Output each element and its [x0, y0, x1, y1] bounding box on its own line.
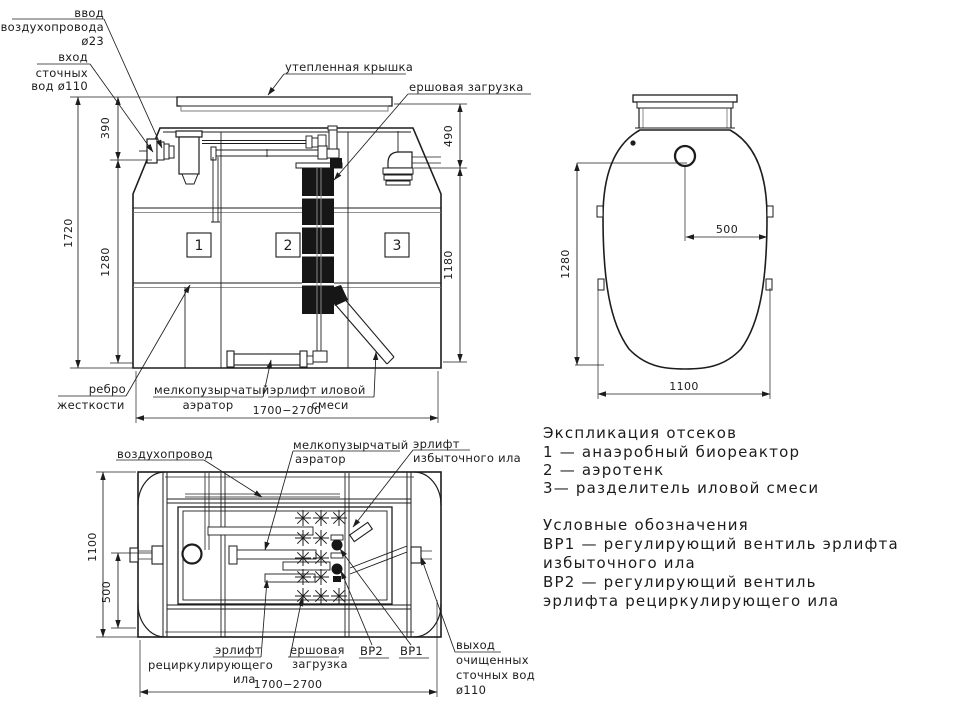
inlet-assembly — [139, 131, 202, 184]
sludge-airlift-pipe — [328, 285, 394, 364]
plan-brush-label-line2: загрузка — [292, 657, 348, 671]
compartment-1-number: 1 — [195, 238, 204, 254]
side-body — [597, 130, 773, 369]
compartment-3-number: 3 — [393, 238, 402, 254]
plan-view: 1100 500 1700−2700 — [86, 437, 535, 697]
plan-aerator-label-line1: мелкопузырчатый — [293, 438, 409, 452]
side-neck-and-flange — [633, 95, 737, 128]
front-view: 1 2 3 — [1, 6, 531, 423]
drawing-svg: 1 2 3 — [0, 0, 953, 710]
septic-tank-drawing: 1 2 3 — [0, 0, 953, 710]
air-duct-label: воздухопровод — [117, 447, 213, 461]
dim-inlet-depth: 390 — [99, 117, 112, 139]
legend-block: Экспликация отсеков 1 — анаэробный биоре… — [543, 424, 899, 610]
legend-compartments-title: Экспликация отсеков — [543, 424, 737, 442]
valve-vr1-label: ВР1 — [400, 644, 423, 658]
legend-vr1-line2: избыточного ила — [543, 554, 696, 572]
aerator-label-line2: аэратор — [183, 398, 234, 412]
dim-cover-height: 490 — [442, 125, 455, 147]
legend-compartment-1: 1 — анаэробный биореактор — [543, 443, 800, 461]
brush-media-column — [296, 163, 342, 362]
outlet-label-line3: сточных вод — [456, 668, 535, 682]
dim-plan-length: 1700−2700 — [254, 678, 323, 691]
plan-manhole — [183, 545, 202, 564]
insulated-cover-label: утепленная крышка — [285, 60, 413, 74]
excess-airlift-label-line2: избыточного ила — [413, 451, 521, 465]
legend-compartment-3: 3— разделитель иловой смеси — [543, 479, 819, 497]
insulated-cover — [177, 97, 392, 111]
recirc-airlift-label-line1: эрлифт — [215, 643, 262, 657]
recirc-airlift-label-line2: рециркулирующего — [148, 658, 273, 672]
plan-brush-label-line1: ершовая — [290, 643, 345, 657]
air-inlet-label-line1: ввод — [74, 6, 104, 20]
plan-inlet-stub — [130, 546, 163, 564]
legend-vr2-line1: ВР2 — регулирующий вентиль — [543, 573, 817, 591]
valve-vr2 — [332, 564, 343, 575]
dim-side-width: 1100 — [669, 380, 699, 393]
legend-vr2-line2: эрлифта рециркулирующего ила — [543, 592, 839, 610]
excess-airlift-label-line1: эрлифт — [413, 437, 460, 451]
vent-dot — [630, 140, 635, 145]
dim-side-half-width: 500 — [716, 223, 738, 236]
plan-aerator-label-line2: аэратор — [295, 452, 346, 466]
air-inlet-label-line2: воздухопровода — [1, 20, 104, 34]
dim-plan-inlet-offset: 500 — [100, 581, 113, 603]
outlet-label-line1: выход — [456, 638, 495, 652]
sewage-inlet-label-line2: сточных — [36, 66, 88, 80]
compartment-markers: 1 2 3 — [187, 233, 409, 257]
sludge-airlift-label-line2: смеси — [311, 398, 348, 412]
aerator-label-line1: мелкопузырчатый — [154, 383, 270, 397]
outlet-label-line4: ø110 — [456, 683, 486, 697]
sewage-inlet-label-line1: вход — [58, 50, 88, 64]
dim-plan-width: 1100 — [86, 532, 99, 562]
plan-valves — [331, 535, 343, 582]
plan-excess-airlift — [350, 522, 373, 541]
side-dimensions: 500 1280 1100 — [559, 163, 770, 399]
outlet-elbow — [383, 152, 441, 185]
valve-vr2-label: ВР2 — [360, 644, 383, 658]
side-view: 500 1280 1100 — [559, 95, 773, 399]
dim-total-height: 1720 — [62, 218, 75, 248]
air-inlet-label-line3: ø23 — [81, 34, 104, 48]
front-labels: ввод воздухопровода ø23 вход сточных вод… — [1, 6, 524, 412]
plan-diagonal-pipes — [350, 546, 407, 574]
legend-vr1-line1: ВР1 — регулирующий вентиль эрлифта — [543, 535, 899, 553]
front-dimensions: 1720 390 1280 490 1180 1700−2700 — [62, 97, 467, 423]
dim-right-body-height: 1180 — [442, 250, 455, 280]
sludge-airlift-label-line1: эрлифт иловой — [270, 383, 366, 397]
legend-symbols-title: Условные обозначения — [543, 516, 749, 534]
outlet-label-line2: очищенных — [456, 653, 529, 667]
dim-side-height: 1280 — [559, 249, 572, 279]
plan-outlet-stub — [411, 547, 432, 563]
stiffening-rib-label-line2: жесткости — [57, 398, 125, 412]
brush-media-label: ершовая загрузка — [409, 80, 524, 94]
compartment-2-number: 2 — [284, 238, 293, 254]
recirc-airlift-label-line3: ила — [233, 672, 256, 686]
sewage-inlet-label-line3: вод ø110 — [31, 79, 88, 93]
valve-vr1 — [332, 540, 343, 551]
legend-compartment-2: 2 — аэротенк — [543, 461, 664, 479]
stiffening-rib-label-line1: ребро — [89, 382, 126, 396]
dim-left-body-height: 1280 — [99, 247, 112, 277]
